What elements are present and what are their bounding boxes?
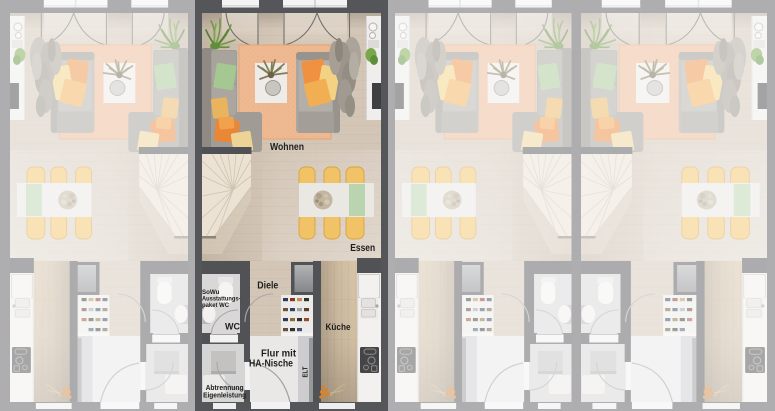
svg-text:Diele: Diele (257, 280, 278, 292)
svg-text:WC: WC (225, 322, 240, 333)
svg-text:paket WC: paket WC (202, 302, 229, 309)
svg-text:Eigenleistung: Eigenleistung (203, 393, 246, 400)
svg-text:Wohnen: Wohnen (270, 141, 304, 153)
svg-text:ELT: ELT (301, 366, 310, 377)
svg-text:Küche: Küche (326, 322, 351, 333)
svg-text:Abtrennung: Abtrennung (206, 385, 244, 392)
svg-text:HA-Nische: HA-Nische (249, 358, 293, 370)
svg-text:Essen: Essen (350, 243, 375, 254)
